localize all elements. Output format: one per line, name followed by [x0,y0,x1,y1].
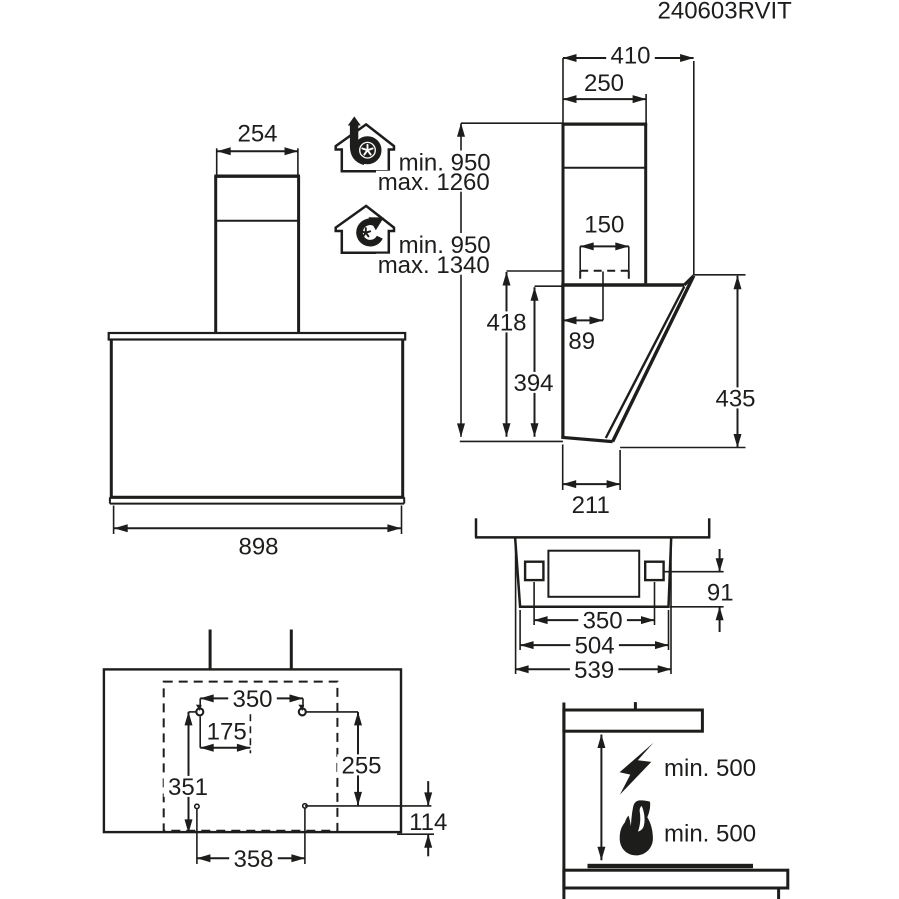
svg-text:358: 358 [233,846,273,873]
svg-text:504: 504 [575,633,615,660]
svg-text:418: 418 [486,310,526,337]
svg-text:351: 351 [168,774,208,801]
svg-text:350: 350 [232,686,272,713]
svg-text:89: 89 [568,328,595,355]
svg-text:211: 211 [572,492,610,519]
svg-text:175: 175 [207,719,247,746]
svg-text:255: 255 [341,753,381,780]
svg-text:min. 500: min. 500 [664,755,756,782]
svg-text:max. 1340: max. 1340 [378,252,490,279]
svg-text:898: 898 [238,534,278,561]
svg-text:410: 410 [610,43,650,70]
svg-text:394: 394 [513,370,553,397]
svg-text:114: 114 [409,809,447,836]
svg-text:539: 539 [574,657,614,684]
svg-text:max. 1260: max. 1260 [378,169,490,196]
svg-text:min. 500: min. 500 [664,820,756,847]
svg-text:435: 435 [715,386,755,413]
svg-text:150: 150 [584,212,624,239]
svg-text:350: 350 [583,608,623,635]
svg-text:91: 91 [707,579,734,606]
svg-text:250: 250 [584,70,624,97]
svg-text:240603RVIT: 240603RVIT [658,0,793,25]
svg-text:254: 254 [237,121,277,148]
